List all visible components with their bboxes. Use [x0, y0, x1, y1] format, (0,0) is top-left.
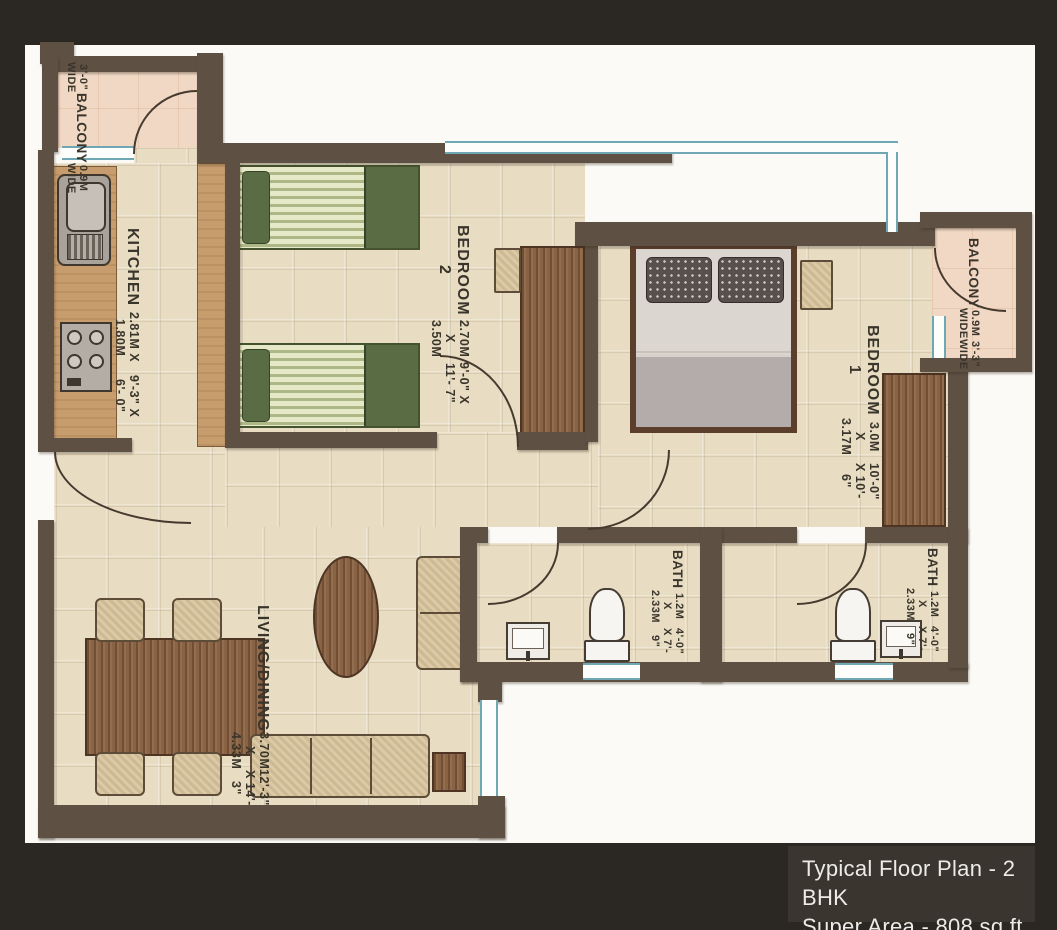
wall	[38, 520, 54, 838]
toilet	[835, 588, 871, 642]
burner	[67, 354, 82, 369]
single-bed-1	[238, 165, 420, 250]
coffee-table	[313, 556, 379, 678]
bed-pillow	[646, 257, 712, 303]
wall	[920, 212, 1032, 228]
window	[886, 152, 898, 232]
wall	[575, 222, 935, 246]
wall	[517, 432, 588, 450]
bed-pillow	[242, 349, 270, 422]
cushion-seam	[370, 738, 372, 794]
bed-foot-cover	[364, 167, 418, 248]
wall	[585, 246, 598, 442]
burner	[89, 330, 104, 345]
sink-drainboard	[67, 234, 103, 260]
bath2-label: BATH 1.2M X 2.33M 4'-0" X 7'- 9"	[903, 548, 941, 656]
window	[583, 663, 640, 680]
side-table	[432, 752, 466, 792]
cushion-seam	[310, 738, 312, 794]
balcony-right-label: BALCONY 0.9M WIDE 3'-3" WIDE	[956, 238, 982, 356]
plan-title-line2: Super Area - 808 sq.ft.	[802, 912, 1035, 930]
wall	[700, 527, 722, 682]
bedroom1-nightstand	[800, 260, 833, 310]
wall	[197, 53, 223, 145]
tap	[526, 651, 530, 661]
sofa	[250, 734, 430, 798]
single-bed-2	[238, 343, 420, 428]
living-dining-label: LIVING/DINING 3.70M X 4.33M 12'-3" X 14'…	[228, 605, 272, 805]
wall	[54, 438, 132, 452]
bath1-label: BATH 1.2M X 2.33M 4'-0" X 7'- 9"	[648, 550, 686, 658]
wall	[478, 680, 502, 702]
burner	[89, 354, 104, 369]
basin-bowl	[512, 628, 544, 649]
toilet-tank	[830, 640, 876, 662]
window	[445, 141, 898, 154]
bedroom1-wardrobe	[882, 373, 946, 527]
kitchen-label: KITCHEN 2.81M X 1.80M 9'-3" X 6'- 0"	[112, 228, 142, 423]
dining-chair	[172, 598, 222, 642]
toilet-tank	[584, 640, 630, 662]
wash-basin	[506, 622, 550, 660]
wall	[42, 56, 58, 152]
bedroom2-wardrobe	[520, 246, 585, 436]
plan-title: Typical Floor Plan - 2 BHK Super Area - …	[788, 846, 1035, 922]
window	[932, 316, 946, 358]
dining-chair	[95, 752, 145, 796]
bedroom2-label: BEDROOM 2 2.70M X 3.50M 9'-0" X 11'- 7"	[428, 225, 472, 405]
wall	[1016, 228, 1032, 358]
bed-blanket	[636, 354, 791, 427]
bed-pillow	[242, 171, 270, 244]
bedroom1-label: BEDROOM 1 3.0M X 3.17M 10'-0" X 10'- 6"	[838, 325, 882, 505]
cooktop-panel	[67, 378, 81, 386]
window	[480, 700, 498, 796]
toilet	[589, 588, 625, 642]
balcony-tl-label: 3'-0" WIDE BALCONY 0.9M WIDE	[64, 62, 90, 146]
burner	[67, 330, 82, 345]
double-bed	[630, 243, 797, 433]
wall	[948, 358, 968, 668]
dining-chair	[95, 598, 145, 642]
wall	[225, 432, 437, 448]
wall	[478, 796, 505, 838]
floor-plan: KITCHEN 2.81M X 1.80M 9'-3" X 6'- 0" BED…	[0, 0, 1057, 930]
cooktop	[60, 322, 112, 392]
kitchen-counter-right	[197, 163, 227, 447]
bed-foot-cover	[364, 345, 418, 426]
sheet-fold	[636, 351, 791, 353]
window	[835, 663, 893, 680]
wall	[460, 527, 488, 543]
dining-chair	[172, 752, 222, 796]
bed-pillow	[718, 257, 784, 303]
wall	[38, 150, 54, 452]
wall	[225, 163, 240, 438]
bedroom2-nightstand	[494, 248, 521, 293]
wall	[38, 805, 505, 838]
plan-title-line1: Typical Floor Plan - 2 BHK	[802, 854, 1035, 912]
